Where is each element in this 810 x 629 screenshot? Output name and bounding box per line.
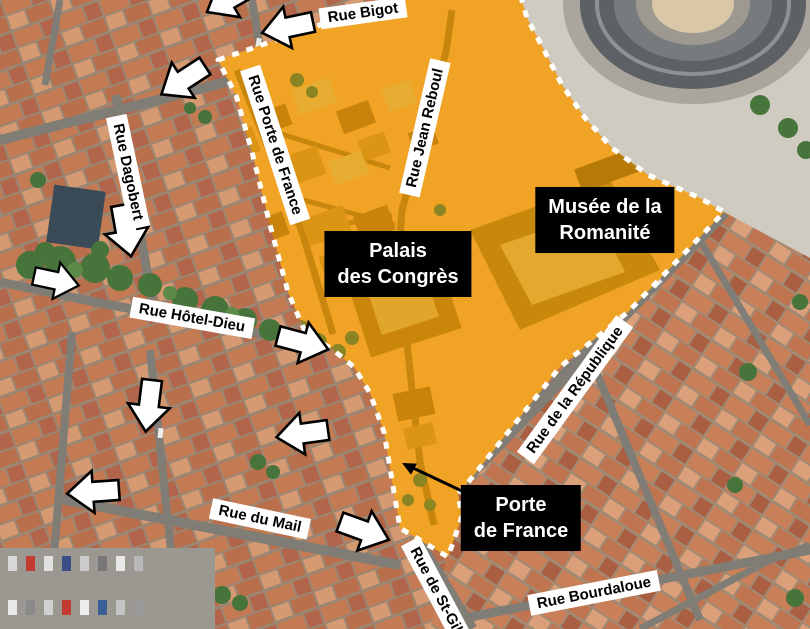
landmark-label-line: Romanité: [548, 220, 661, 246]
landmark-label-porte-de-france: Porte de France: [461, 485, 581, 551]
aerial-map-figure: Rue Bigot Rue Porte de France Rue Jean R…: [0, 0, 810, 629]
landmark-label-line: Palais: [337, 238, 458, 264]
landmark-label-line: Musée de la: [548, 194, 661, 220]
landmark-label-musee-de-la-romanite: Musée de la Romanité: [535, 187, 674, 253]
parking-lot: [0, 548, 215, 629]
landmark-label-line: de France: [474, 518, 568, 544]
landmark-label-palais-des-congres: Palais des Congrès: [324, 231, 471, 297]
satellite-basemap: [0, 0, 810, 629]
landmark-label-line: des Congrès: [337, 264, 458, 290]
landmark-label-line: Porte: [474, 492, 568, 518]
